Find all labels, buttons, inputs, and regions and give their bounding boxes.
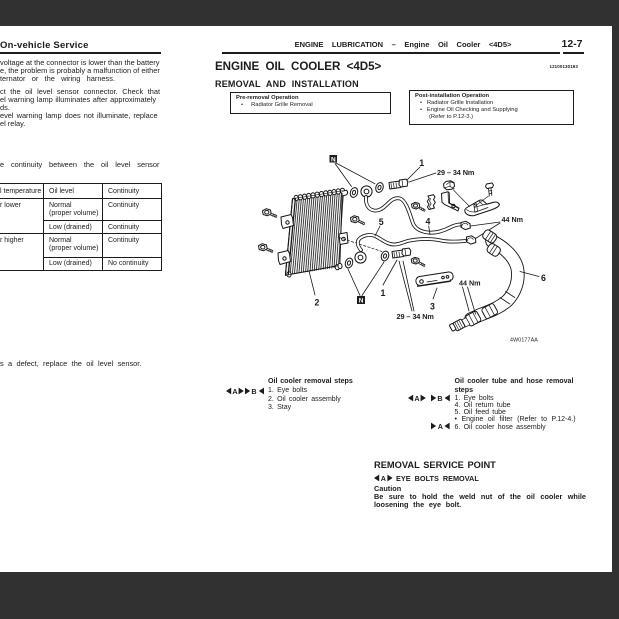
svg-text:1: 1: [381, 288, 386, 298]
svg-text:A: A: [381, 474, 386, 482]
svg-text:44 Nm: 44 Nm: [502, 215, 524, 224]
svg-text:4W0177AA: 4W0177AA: [510, 338, 538, 344]
svg-text:N: N: [331, 156, 336, 163]
svg-text:1: 1: [419, 158, 424, 168]
svg-text:N: N: [359, 298, 364, 305]
svg-text:4: 4: [426, 217, 431, 227]
svg-text:A: A: [232, 387, 237, 395]
svg-text:A: A: [438, 422, 443, 430]
svg-text:A: A: [414, 394, 419, 402]
svg-text:B: B: [437, 394, 442, 402]
svg-text:44 Nm: 44 Nm: [459, 279, 481, 288]
svg-text:B: B: [251, 387, 256, 395]
svg-text:3: 3: [430, 302, 435, 312]
svg-text:6: 6: [541, 273, 546, 283]
svg-text:29 – 34 Nm: 29 – 34 Nm: [437, 168, 475, 177]
svg-text:2: 2: [315, 298, 320, 308]
svg-text:5: 5: [379, 217, 384, 227]
svg-text:29 – 34 Nm: 29 – 34 Nm: [397, 312, 435, 321]
